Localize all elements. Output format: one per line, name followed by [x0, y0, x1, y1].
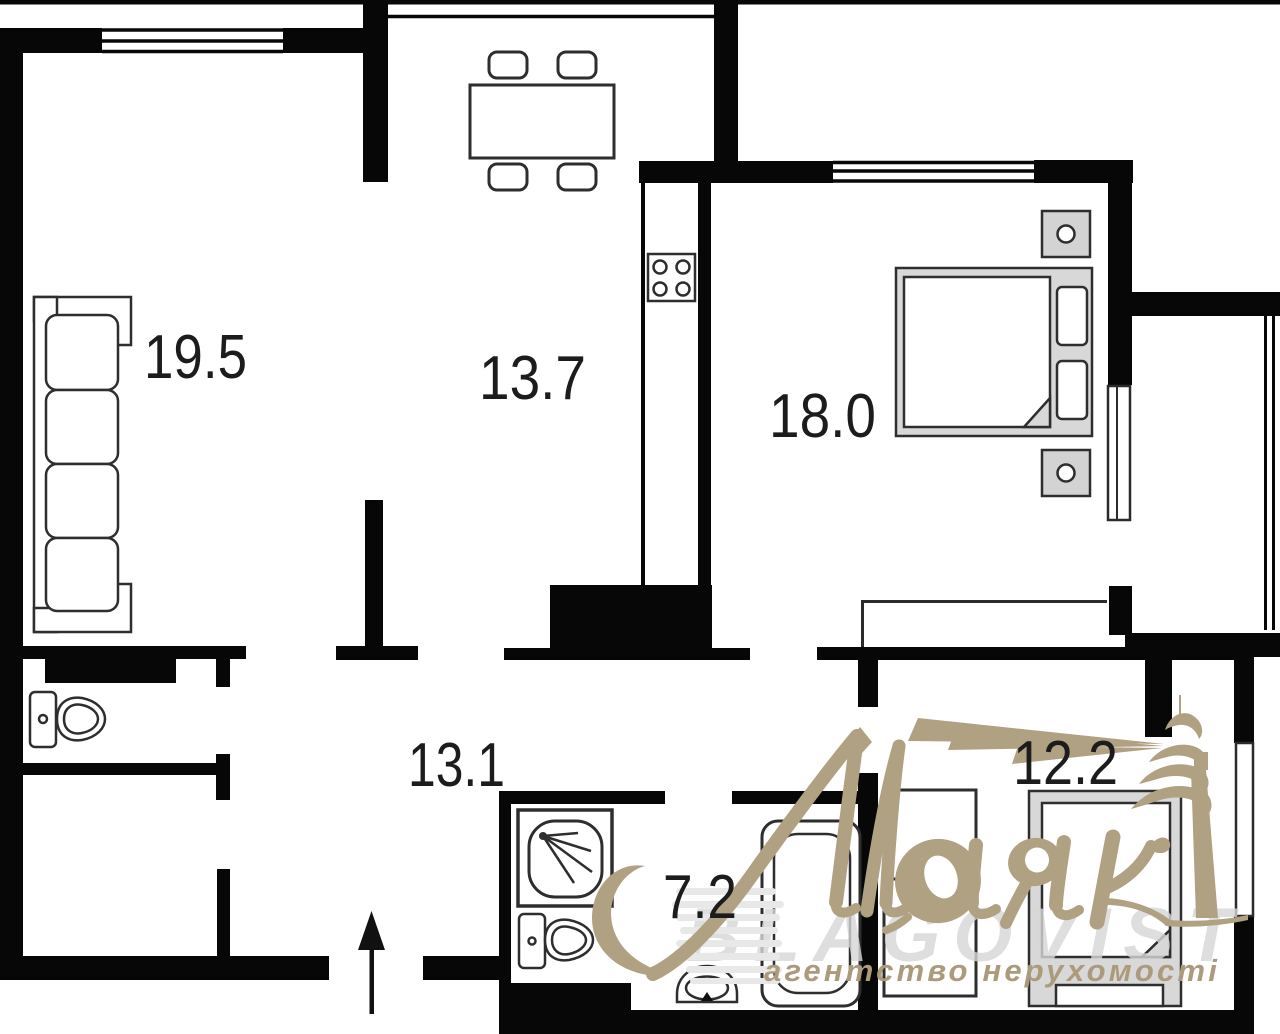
svg-text:18.0: 18.0: [769, 382, 876, 451]
svg-text:12.2: 12.2: [1013, 729, 1118, 798]
svg-text:19.5: 19.5: [144, 323, 247, 392]
svg-text:13.7: 13.7: [479, 344, 586, 413]
svg-text:13.1: 13.1: [408, 731, 505, 800]
svg-text:7.2: 7.2: [663, 863, 737, 932]
svg-text:агентство нерухомості: агентство нерухомості: [764, 953, 1220, 988]
